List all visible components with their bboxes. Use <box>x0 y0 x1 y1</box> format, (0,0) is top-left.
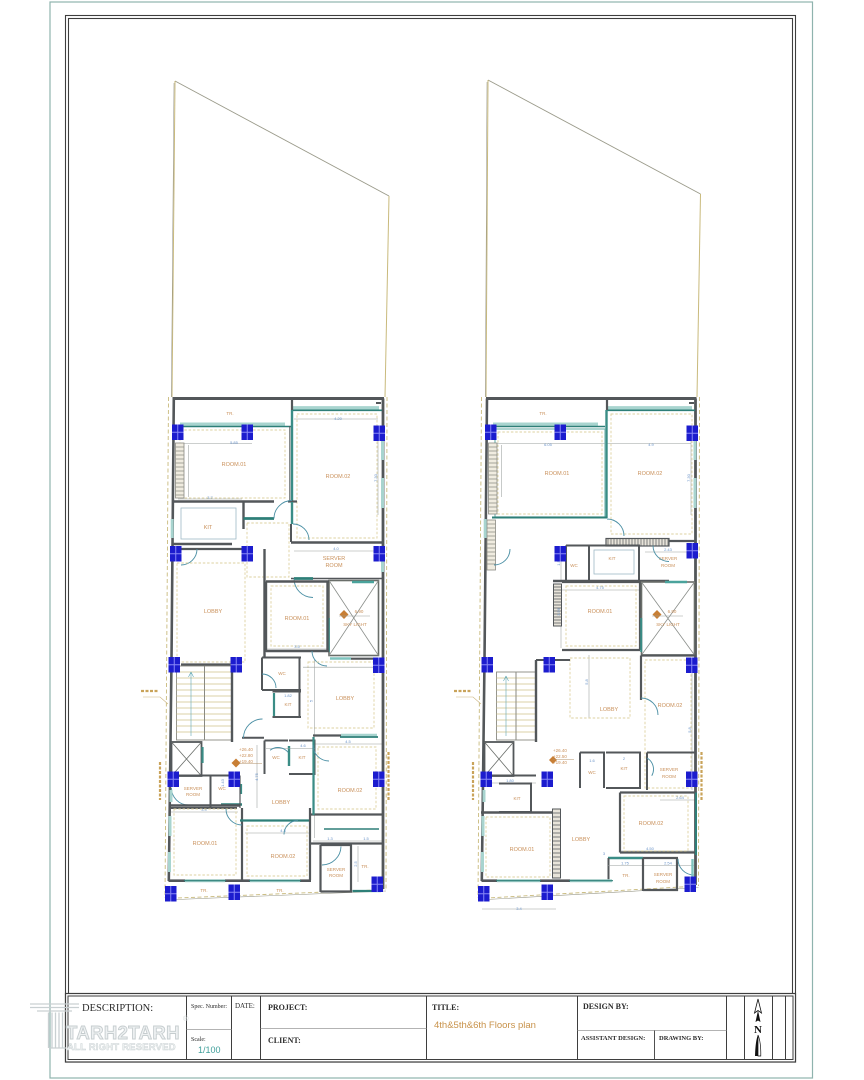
svg-text:ROOM.01: ROOM.01 <box>222 462 247 468</box>
svg-text:2.43: 2.43 <box>664 547 673 552</box>
svg-text:CLIENT:: CLIENT: <box>268 1036 301 1045</box>
svg-text:ROOM.01: ROOM.01 <box>545 471 570 477</box>
svg-text:ROOM: ROOM <box>661 563 675 568</box>
svg-text:SERVER: SERVER <box>660 767 679 772</box>
svg-text:LOBBY: LOBBY <box>204 609 223 615</box>
svg-text:®: ® <box>183 1014 189 1023</box>
svg-text:ROOM.01: ROOM.01 <box>285 616 310 622</box>
svg-text:SERVER: SERVER <box>323 556 346 562</box>
svg-text:LOBBY: LOBBY <box>600 707 619 713</box>
svg-text:3.9: 3.9 <box>201 807 207 812</box>
svg-text:+19.40: +19.40 <box>553 760 567 765</box>
svg-text:ALL RIGHT RESERVED: ALL RIGHT RESERVED <box>67 1042 176 1053</box>
svg-text:PROJECT:: PROJECT: <box>268 1003 307 1012</box>
svg-text:5.85: 5.85 <box>230 440 239 445</box>
svg-text:SKY LIGHT: SKY LIGHT <box>343 622 367 627</box>
svg-text:3.4: 3.4 <box>516 906 522 911</box>
svg-text:4.6: 4.6 <box>300 743 306 748</box>
svg-text:1/100: 1/100 <box>198 1045 221 1055</box>
svg-text:4.50: 4.50 <box>646 846 655 851</box>
svg-text:ROOM.02: ROOM.02 <box>658 703 683 709</box>
svg-text:2.54: 2.54 <box>664 861 673 866</box>
svg-text:TITLE:: TITLE: <box>432 1003 459 1012</box>
svg-text:TARH2TARH: TARH2TARH <box>66 1022 180 1043</box>
svg-text:5.8: 5.8 <box>584 678 589 684</box>
svg-text:1.3: 1.3 <box>327 836 333 841</box>
svg-text:TR.: TR. <box>200 888 207 893</box>
svg-text:7.30: 7.30 <box>373 473 378 482</box>
svg-text:2.64: 2.64 <box>676 795 685 800</box>
svg-text:1.82: 1.82 <box>284 693 293 698</box>
svg-text:KIT: KIT <box>513 796 520 801</box>
svg-text:ROOM.02: ROOM.02 <box>638 471 663 477</box>
svg-text:ROOM.01: ROOM.01 <box>193 841 218 847</box>
svg-text:1.80: 1.80 <box>506 778 515 783</box>
svg-text:WC: WC <box>588 770 596 775</box>
svg-text:WC: WC <box>570 563 578 568</box>
svg-text:+22.80: +22.80 <box>239 753 253 758</box>
svg-text:3.7: 3.7 <box>207 495 213 500</box>
svg-text:SERVER: SERVER <box>184 786 203 791</box>
svg-text:DESCRIPTION:: DESCRIPTION: <box>82 1003 153 1014</box>
svg-text:ASSISTANT DESIGN:: ASSISTANT DESIGN: <box>581 1035 645 1042</box>
svg-text:4.0: 4.0 <box>333 546 339 551</box>
svg-text:WC: WC <box>278 671 286 676</box>
svg-text:TR.: TR. <box>226 411 233 416</box>
svg-text:ROOM.01: ROOM.01 <box>510 847 535 853</box>
svg-text:4th&5th&6th Floors plan: 4th&5th&6th Floors plan <box>434 1020 536 1031</box>
svg-text:SERVER: SERVER <box>654 872 673 877</box>
svg-text:LOBBY: LOBBY <box>336 696 355 702</box>
svg-text:N: N <box>754 1024 762 1036</box>
svg-text:LOBBY: LOBBY <box>572 837 591 843</box>
svg-text:ROOM.02: ROOM.02 <box>326 474 351 480</box>
svg-text:+26.40: +26.40 <box>553 748 567 753</box>
svg-text:+26.40: +26.40 <box>239 747 253 752</box>
svg-text:KIT: KIT <box>284 702 291 707</box>
svg-text:ROOM: ROOM <box>662 774 676 779</box>
svg-text:3.56: 3.56 <box>556 607 561 616</box>
svg-text:6.90: 6.90 <box>355 609 364 614</box>
svg-text:3.5: 3.5 <box>294 644 300 649</box>
svg-text:ROOM: ROOM <box>325 563 343 569</box>
svg-text:5.8: 5.8 <box>687 726 692 732</box>
svg-text:6.90: 6.90 <box>668 609 677 614</box>
svg-text:7.30: 7.30 <box>686 473 691 482</box>
svg-text:ROOM: ROOM <box>329 873 343 878</box>
svg-text:DATE:: DATE: <box>235 1002 255 1010</box>
svg-text:1.75: 1.75 <box>621 861 630 866</box>
svg-text:LOBBY: LOBBY <box>272 800 291 806</box>
svg-text:ROOM.02: ROOM.02 <box>639 821 664 827</box>
svg-text:SERVER: SERVER <box>327 867 346 872</box>
svg-text:KIT: KIT <box>608 556 615 561</box>
svg-text:+22.50: +22.50 <box>553 754 567 759</box>
svg-text:6.05: 6.05 <box>544 442 553 447</box>
svg-text:4.75: 4.75 <box>254 772 259 781</box>
svg-text:1.5: 1.5 <box>363 836 369 841</box>
svg-text:1.43: 1.43 <box>220 778 225 787</box>
svg-text:ROOM: ROOM <box>186 792 200 797</box>
svg-text:Scale:: Scale: <box>191 1037 206 1043</box>
svg-text:KIT: KIT <box>298 755 305 760</box>
svg-text:4.20: 4.20 <box>334 416 343 421</box>
svg-text:WC: WC <box>272 755 280 760</box>
svg-text:2.5: 2.5 <box>353 860 358 866</box>
svg-text:TR.: TR. <box>539 411 546 416</box>
svg-text:KIT: KIT <box>620 766 627 771</box>
svg-text:DRAWING BY:: DRAWING BY: <box>659 1035 703 1042</box>
svg-text:4.5: 4.5 <box>345 739 351 744</box>
svg-text:ROOM.02: ROOM.02 <box>271 854 296 860</box>
svg-text:1.6: 1.6 <box>589 758 595 763</box>
svg-text:SKY LIGHT: SKY LIGHT <box>656 622 680 627</box>
svg-text:DESIGN BY:: DESIGN BY: <box>583 1002 629 1011</box>
svg-text:KIT: KIT <box>204 525 213 531</box>
svg-text:4.9: 4.9 <box>648 442 654 447</box>
svg-text:Spec. Number:: Spec. Number: <box>191 1004 227 1010</box>
svg-text:ROOM: ROOM <box>656 879 670 884</box>
svg-text:ROOM.02: ROOM.02 <box>338 788 363 794</box>
svg-text:TR.: TR. <box>622 873 629 878</box>
svg-text:TR.: TR. <box>361 864 368 869</box>
svg-text:ROOM.01: ROOM.01 <box>588 609 613 615</box>
svg-text:TR.: TR. <box>276 888 283 893</box>
